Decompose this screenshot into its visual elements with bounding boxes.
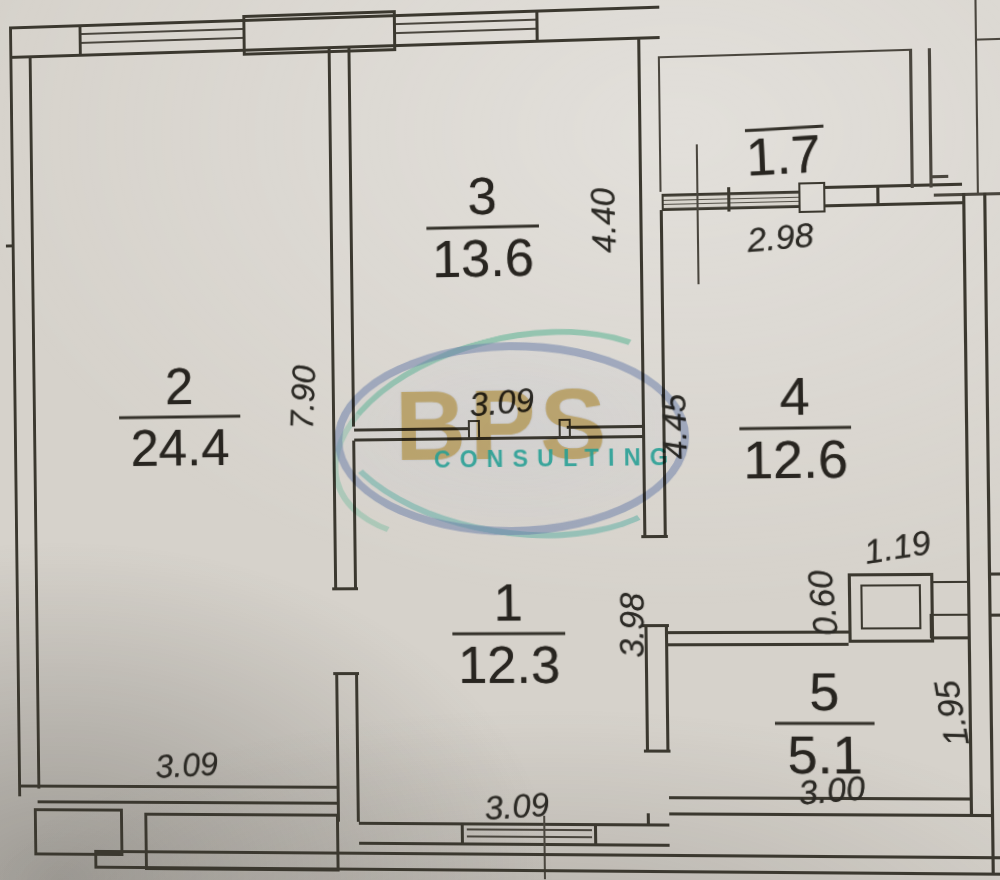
- room-1-number: 1: [452, 576, 565, 629]
- middle-wall-right-face: [355, 672, 360, 822]
- middle-wall-right-face: [347, 45, 355, 426]
- bottom-wall-cap: [94, 850, 97, 869]
- door-jamb-room2-room1: [332, 587, 358, 590]
- room-2-area: 24.4: [119, 420, 241, 475]
- dim-room3-room1-width: 3.09: [468, 381, 536, 424]
- balcony-left-line: [658, 56, 662, 192]
- balcony-top-line: [660, 49, 909, 58]
- middle-wall-left-face: [328, 46, 338, 590]
- room-5-number: 5: [774, 665, 874, 718]
- divider-room3-room1: [567, 425, 642, 428]
- window-room3-top: [396, 19, 536, 25]
- watermark-name: CONSULTING: [434, 443, 678, 473]
- loggia-pier: [34, 808, 124, 856]
- dim-room2-depth: 7.90: [283, 365, 323, 430]
- window-frame-tick: [461, 822, 464, 844]
- top-wall-pier-tick: [535, 10, 538, 43]
- middle-wall-left-face: [335, 672, 340, 822]
- bottom-wall-outer: [94, 866, 1000, 876]
- dim-shaft-width: 1.19: [861, 523, 934, 572]
- left-wall-outer-face: [9, 26, 21, 796]
- top-wall-pier-tick: [79, 24, 82, 57]
- room2-bottom-wall: [18, 785, 339, 789]
- extension-line: [696, 144, 699, 284]
- dim-room4-left-depth: 4.45: [654, 393, 695, 459]
- balcony-bottom-to-edge: [934, 192, 1000, 196]
- room-5-label: 5 5.1: [774, 665, 875, 783]
- dim-balcony-width: 2.98: [746, 216, 815, 260]
- right-edge-line: [974, 0, 979, 193]
- balcony-right-wall: [928, 48, 932, 187]
- corridor-wall-left-face: [637, 37, 646, 539]
- dim-room2-bottom-width: 3.09: [154, 745, 219, 786]
- divider-room4-room5: [667, 643, 848, 646]
- balcony-window-mid-tick: [727, 187, 730, 211]
- right-wall-outer-face: [983, 192, 995, 874]
- balcony-sill-wall: [823, 201, 962, 207]
- room-3-area: 13.6: [426, 229, 539, 286]
- room-2-label: 2 24.4: [118, 359, 241, 474]
- door-jamb-room2-room1: [333, 672, 359, 675]
- right-wall-shaft-tick: [990, 572, 1000, 575]
- balcony-window: [662, 191, 801, 211]
- middle-wall-right-face: [352, 441, 357, 591]
- balcony-right-wall: [909, 49, 913, 188]
- window-room3-top: [396, 28, 536, 34]
- window-room2-top: [82, 28, 243, 35]
- room-1-label: 1 12.3: [452, 576, 566, 692]
- loggia-window: [144, 813, 339, 872]
- room1-bottom-wall: [359, 842, 670, 847]
- room-3-number: 3: [426, 168, 539, 223]
- left-wall-inner-face: [29, 55, 41, 788]
- divider-room3-room1-threshold: [354, 435, 642, 441]
- room-4-label: 4 12.6: [739, 369, 852, 488]
- window-room2-top: [82, 37, 243, 44]
- dim-room1-bottom-width: 3.09: [483, 785, 551, 827]
- divider-room3-room1: [354, 427, 470, 431]
- window-frame-tick: [594, 823, 597, 845]
- right-edge-tick: [975, 38, 1000, 41]
- dim-shaft-depth: 0.60: [800, 569, 846, 638]
- shaft-connector-line: [930, 614, 933, 639]
- room5-bottom-wall: [669, 812, 993, 817]
- dim-right-edge-partial: 1.00: [996, 672, 1000, 744]
- balcony-window-post: [798, 182, 825, 213]
- corridor-wall-right-face: [660, 210, 667, 538]
- floor-plan: 2 24.4 3 13.6 1 12.3 4 12.6 5 5.1 1.7 3.…: [3, 0, 1000, 880]
- door-jamb-room1-room4: [641, 535, 668, 538]
- left-wall-tick: [6, 244, 14, 247]
- room-4-number: 4: [739, 369, 851, 424]
- room2-bottom-wall: [38, 800, 340, 804]
- balcony-sill-wall: [823, 183, 962, 189]
- room-4-area: 12.6: [739, 431, 851, 487]
- top-wall-pier-block: [242, 10, 396, 56]
- shaft-connector-line: [932, 636, 968, 639]
- room-2-number: 2: [118, 359, 240, 412]
- balcony-foot-tick: [931, 175, 948, 178]
- window-room1-bottom: [467, 835, 592, 838]
- dim-room5-bottom-width: 3.00: [797, 769, 867, 813]
- dim-room3-right-depth: 4.40: [584, 187, 625, 253]
- vent-shaft-inner: [860, 584, 921, 629]
- dim-room1-right-depth: 3.98: [613, 592, 652, 657]
- room-3-label: 3 13.6: [426, 168, 540, 286]
- balcony-sill-tick: [876, 185, 879, 207]
- balcony-area-label: 1.7: [745, 126, 822, 185]
- shaft-connector: [931, 581, 969, 616]
- door-post: [559, 419, 571, 439]
- window-room1-bottom: [467, 828, 592, 831]
- right-wall-shaft-tick: [991, 614, 1000, 617]
- door-jamb-room1-room5: [644, 750, 671, 753]
- room-1-area: 12.3: [452, 637, 566, 691]
